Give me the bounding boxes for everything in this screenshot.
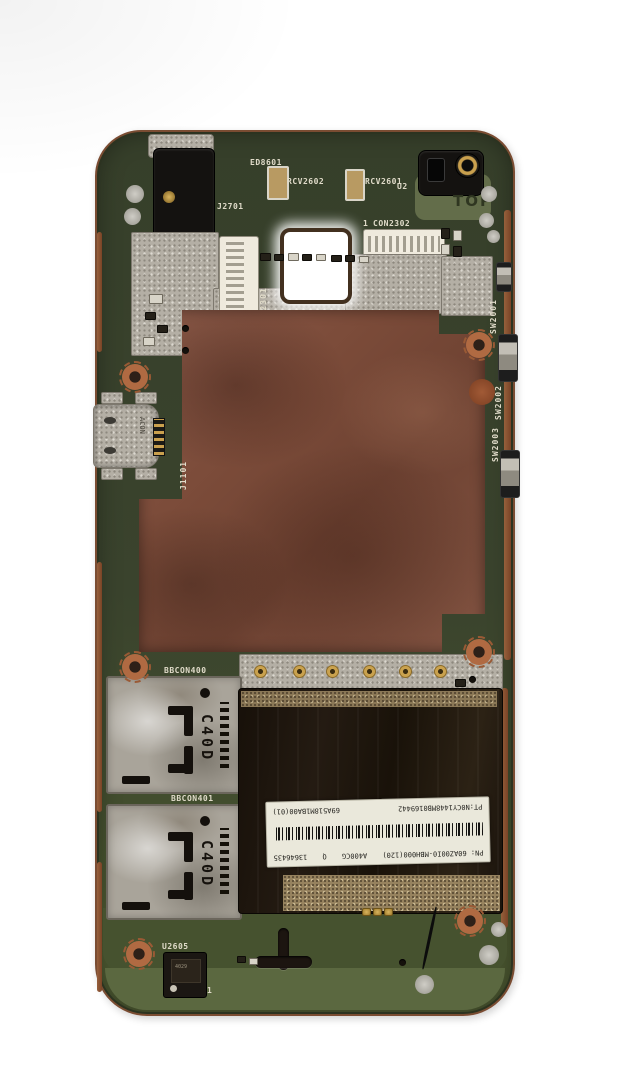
part-number-sticker: PN: 60AZ00I0-MBH000(120) A400CG Q 136464… <box>265 796 491 867</box>
camera-connector-latch <box>427 158 445 182</box>
gold-contact-hole <box>399 665 412 678</box>
con2302-pin1-marker: 1 <box>363 219 368 228</box>
smd-component <box>145 312 156 320</box>
screw-hole-copper-ring <box>122 654 148 680</box>
smd-component <box>288 253 299 261</box>
rcv2601-pad <box>345 169 365 201</box>
smd-component <box>249 958 258 965</box>
smd-component <box>359 256 369 263</box>
emi-shield-right <box>441 256 493 316</box>
j2701-label: J2701 <box>217 202 244 211</box>
j1101-label: J1101 <box>179 450 188 490</box>
shield-cutout <box>184 706 193 736</box>
u2605-die-marking: 4029 <box>175 964 187 970</box>
gold-contact <box>362 908 371 916</box>
tin-pad <box>124 208 141 225</box>
volume-switch-sw2002 <box>498 334 518 382</box>
smd-component <box>316 254 326 261</box>
sticker-barcode <box>275 823 483 841</box>
smd-component <box>331 255 342 262</box>
smd-component <box>441 244 450 255</box>
shield-cutout <box>122 776 150 784</box>
drill-hole <box>469 676 476 683</box>
smd-component <box>149 294 163 304</box>
tin-pad <box>491 922 506 937</box>
screw-hole-copper-ring <box>126 941 152 967</box>
copper-edge-left-top <box>97 232 102 352</box>
sticker-code: 69A518M1BA00(01) <box>272 806 340 816</box>
smd-component <box>143 337 155 346</box>
gold-contact <box>384 908 393 916</box>
emi-shield-center <box>345 254 447 314</box>
sticker-pt: PT:N0CY1448MB0169442 <box>398 802 482 812</box>
shield-cutout-dot <box>200 688 210 698</box>
smd-component <box>345 255 355 262</box>
photo-background: ED8601 RCV2602 RCV2601 U2 TOP J2701 1 CO… <box>0 0 628 1080</box>
drill-hole <box>399 959 406 966</box>
sticker-pn-row: PN: 60AZ00I0-MBH000(120) A400CG Q 136464… <box>273 848 483 861</box>
screw-hole-copper-ring <box>457 908 483 934</box>
shield-cutout-dot <box>200 816 210 826</box>
con2302-contacts <box>368 236 440 252</box>
copper-heat-spreader <box>139 310 485 652</box>
shield-cutout <box>168 764 192 773</box>
bbcon400-label: BBCON400 <box>164 666 207 675</box>
sticker-model: A400CG <box>342 851 367 860</box>
smd-component <box>302 254 312 261</box>
tin-pad <box>479 213 494 228</box>
board-slot-horizontal <box>255 956 312 968</box>
volume-switch-sw2003 <box>500 450 520 498</box>
screw-hole-copper-ring <box>466 332 492 358</box>
tin-pad <box>481 186 497 202</box>
tin-pad <box>415 975 434 994</box>
u2-partial-label: U2 <box>397 182 408 191</box>
sw2002-label: SW2002 <box>494 380 503 420</box>
shield-cutout <box>168 890 192 899</box>
gold-contact-hole <box>434 665 447 678</box>
tin-pad <box>487 230 500 243</box>
shield-cutout <box>122 902 150 910</box>
tin-pad <box>479 945 499 965</box>
camera-lens <box>455 153 480 178</box>
usb-pins <box>153 418 165 456</box>
u2605-label: U2605 <box>162 942 189 951</box>
shield-solder-band-top <box>241 691 497 707</box>
smd-component <box>157 325 168 333</box>
smd-component <box>453 246 462 257</box>
sticker-pt-row: PT:N0CY1448MB0169442 69A518M1BA00(01) <box>272 802 482 815</box>
sw2001-label: SW2001 <box>489 296 498 334</box>
motherboard-pcb: ED8601 RCV2602 RCV2601 U2 TOP J2701 1 CO… <box>95 130 515 1016</box>
usb-crimp-hole <box>104 447 116 454</box>
tin-pad <box>126 185 144 203</box>
side-switch-top <box>496 262 512 292</box>
sim-connector-bbcon400: C40D <box>106 676 242 794</box>
drill-hole <box>182 347 189 354</box>
smd-component <box>237 956 246 963</box>
u2605-chip: 4029 <box>163 952 207 998</box>
sim-contact-comb <box>220 828 229 894</box>
usb-mount-tab <box>135 392 157 404</box>
drill-hole <box>182 325 189 332</box>
sticker-qc-mark: Q <box>322 852 326 860</box>
shield-cutout <box>184 832 193 862</box>
rcv2602-label: RCV2602 <box>287 177 324 186</box>
sim-shield-cutout-text: C40D <box>198 840 216 912</box>
board-cutout-hole <box>280 228 352 304</box>
gold-contact-hole <box>326 665 339 678</box>
usb-mount-tab <box>101 468 123 480</box>
bbcon401-label: BBCON401 <box>171 794 214 803</box>
gold-contact <box>373 908 382 916</box>
u2605-pin1-marker: 1 <box>207 986 212 995</box>
sticker-serial: 13646435 <box>273 853 307 862</box>
sticker-pn: PN: 60AZ00I0-MBH000(120) <box>382 848 483 858</box>
smd-component <box>260 253 271 261</box>
sim-shield-cutout-text: C40D <box>198 714 216 786</box>
con2302-label: CON2302 <box>373 219 410 228</box>
rcv2602-pad <box>267 166 289 200</box>
rf-shield-dark: PN: 60AZ00I0-MBH000(120) A400CG Q 136464… <box>238 688 503 914</box>
sim-contact-comb <box>220 702 229 768</box>
micro-usb-connector: ACON <box>93 404 159 468</box>
gold-contact-hole <box>293 665 306 678</box>
copper-edge-left-mid <box>97 562 102 812</box>
smd-component <box>441 228 450 239</box>
u2605-die: 4029 <box>171 959 201 983</box>
copper-pad <box>469 379 495 405</box>
smd-component <box>274 254 284 261</box>
usb-mount-tab <box>135 468 157 480</box>
u2605-pin1-dot <box>170 985 177 992</box>
screw-hole-copper-ring <box>466 639 492 665</box>
smd-component <box>453 230 462 241</box>
gold-contact-hole <box>363 665 376 678</box>
gold-contact-hole <box>254 665 267 678</box>
usb-mount-tab <box>101 392 123 404</box>
shield-residue-band-bottom <box>283 875 500 911</box>
smd-component <box>455 679 466 687</box>
usb-shell-marking: ACON <box>138 417 146 434</box>
headphone-jack-contact <box>163 191 175 203</box>
screw-hole-copper-ring <box>122 364 148 390</box>
sim-connector-bbcon401: C40D <box>106 804 242 920</box>
copper-edge-left-low <box>97 862 102 992</box>
usb-crimp-hole <box>104 417 116 424</box>
sw2003-label: SW2003 <box>491 422 500 462</box>
